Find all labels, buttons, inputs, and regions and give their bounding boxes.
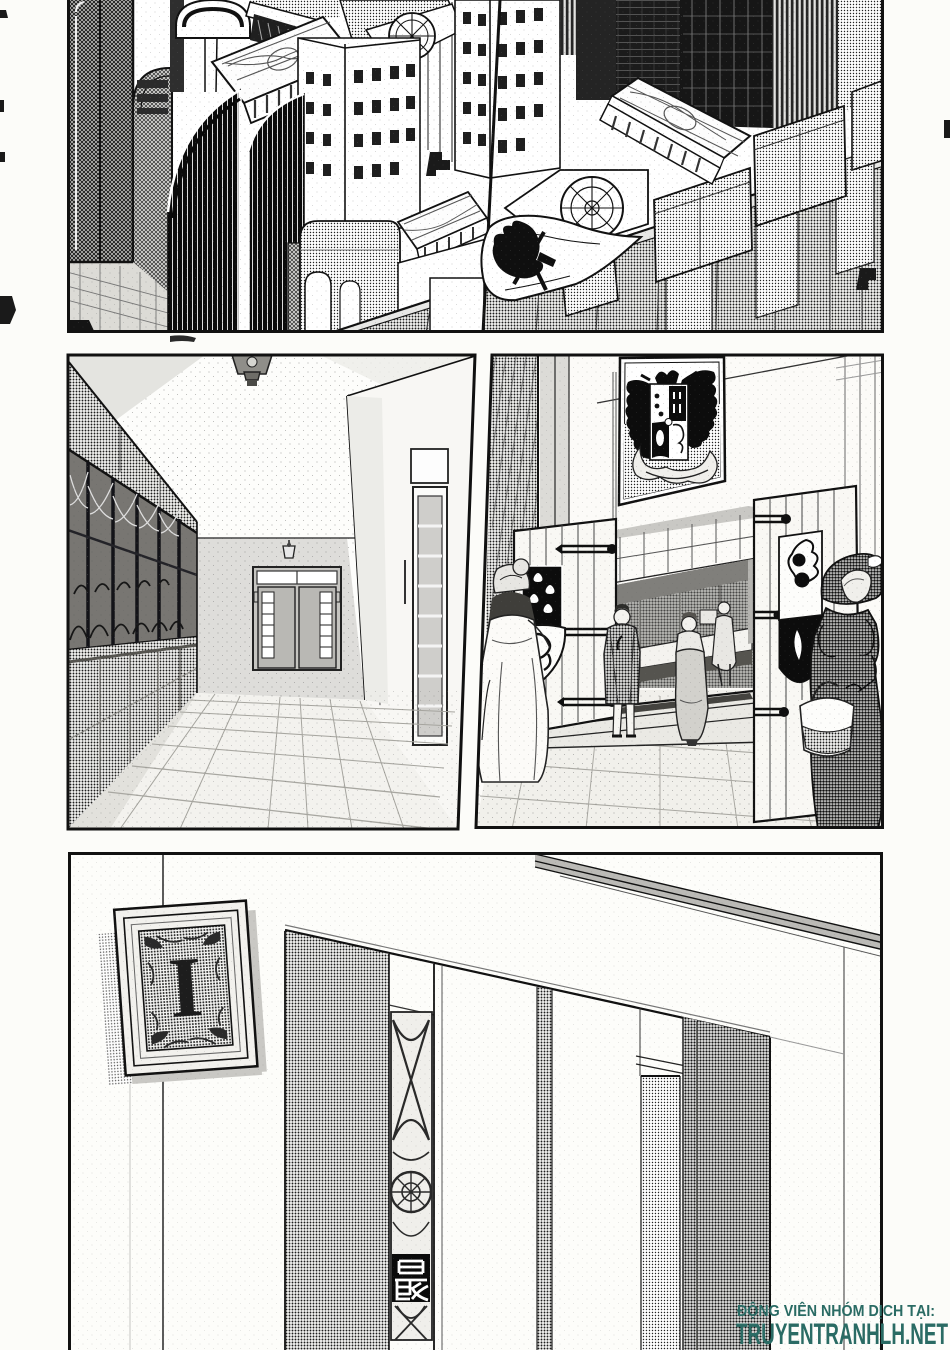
svg-text:TRUYENTRANHLH.NET: TRUYENTRANHLH.NET: [736, 1318, 948, 1350]
